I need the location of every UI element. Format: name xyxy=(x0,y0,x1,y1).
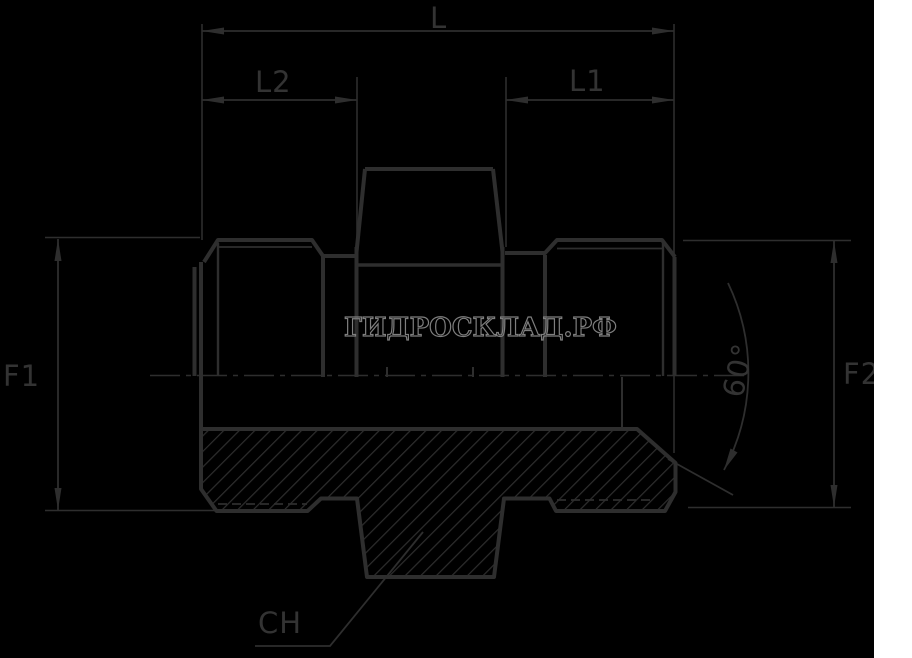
section-cut xyxy=(201,429,676,577)
arrow-angle-arc xyxy=(724,449,738,471)
hex-right-chamfer xyxy=(493,169,503,252)
right-white-margin xyxy=(874,0,912,658)
technical-drawing-page: L L2 L1 F1 F2 60° CH ГИДРОСКЛАД.РФ xyxy=(0,0,912,658)
arrow-F1-top xyxy=(55,239,62,261)
arrow-L1-left xyxy=(506,97,528,104)
arrow-L2-right xyxy=(335,97,357,104)
watermark-text: ГИДРОСКЛАД.РФ xyxy=(344,313,574,343)
arrow-F1-bottom xyxy=(55,488,62,510)
arrow-F2-top xyxy=(831,241,838,263)
left-thread-top-edge xyxy=(204,240,356,262)
dim-label-hex-size: CH xyxy=(258,606,302,640)
arrow-L1-right xyxy=(652,97,674,104)
dim-label-left-thread-size: F1 xyxy=(3,359,40,393)
arrow-L2-left xyxy=(202,97,224,104)
cone-extension-line xyxy=(668,459,733,495)
arrow-F2-bottom xyxy=(831,485,838,507)
dim-label-total-length: L xyxy=(430,1,447,35)
dim-label-right-thread-length: L1 xyxy=(569,64,606,98)
hatched-section-outline xyxy=(201,429,676,577)
arrow-L-right xyxy=(652,28,674,35)
arrow-L-left xyxy=(202,28,224,35)
dim-label-left-thread-length: L2 xyxy=(255,65,292,99)
